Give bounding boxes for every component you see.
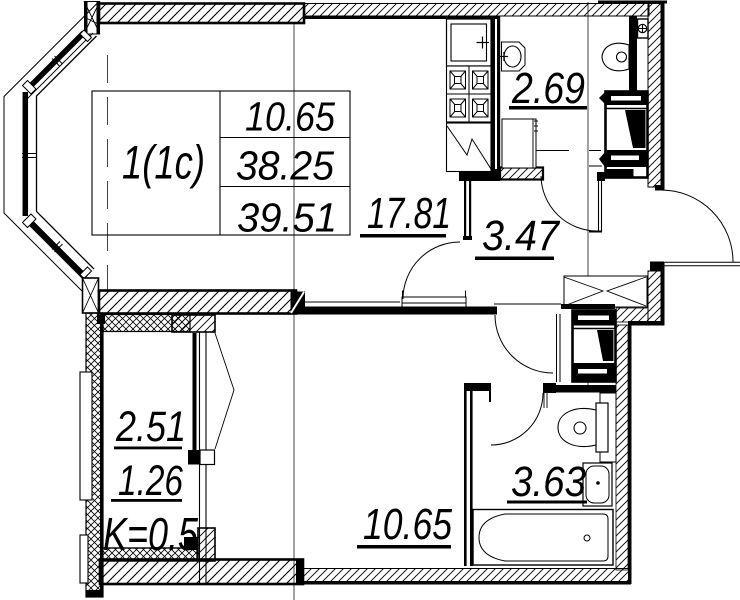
svg-text:39.51: 39.51 (237, 195, 337, 241)
svg-text:38.25: 38.25 (236, 143, 334, 189)
svg-text:1(1c): 1(1c) (122, 136, 205, 189)
svg-text:17.81: 17.81 (367, 189, 451, 238)
svg-text:K=0.5: K=0.5 (103, 508, 198, 560)
svg-text:10.65: 10.65 (363, 500, 452, 549)
svg-text:2.69: 2.69 (511, 64, 585, 113)
svg-text:2.51: 2.51 (115, 403, 186, 451)
svg-text:3.47: 3.47 (482, 212, 561, 260)
svg-text:10.65: 10.65 (245, 94, 335, 140)
svg-text:1.26: 1.26 (118, 457, 183, 505)
svg-text:3.63: 3.63 (511, 458, 586, 506)
